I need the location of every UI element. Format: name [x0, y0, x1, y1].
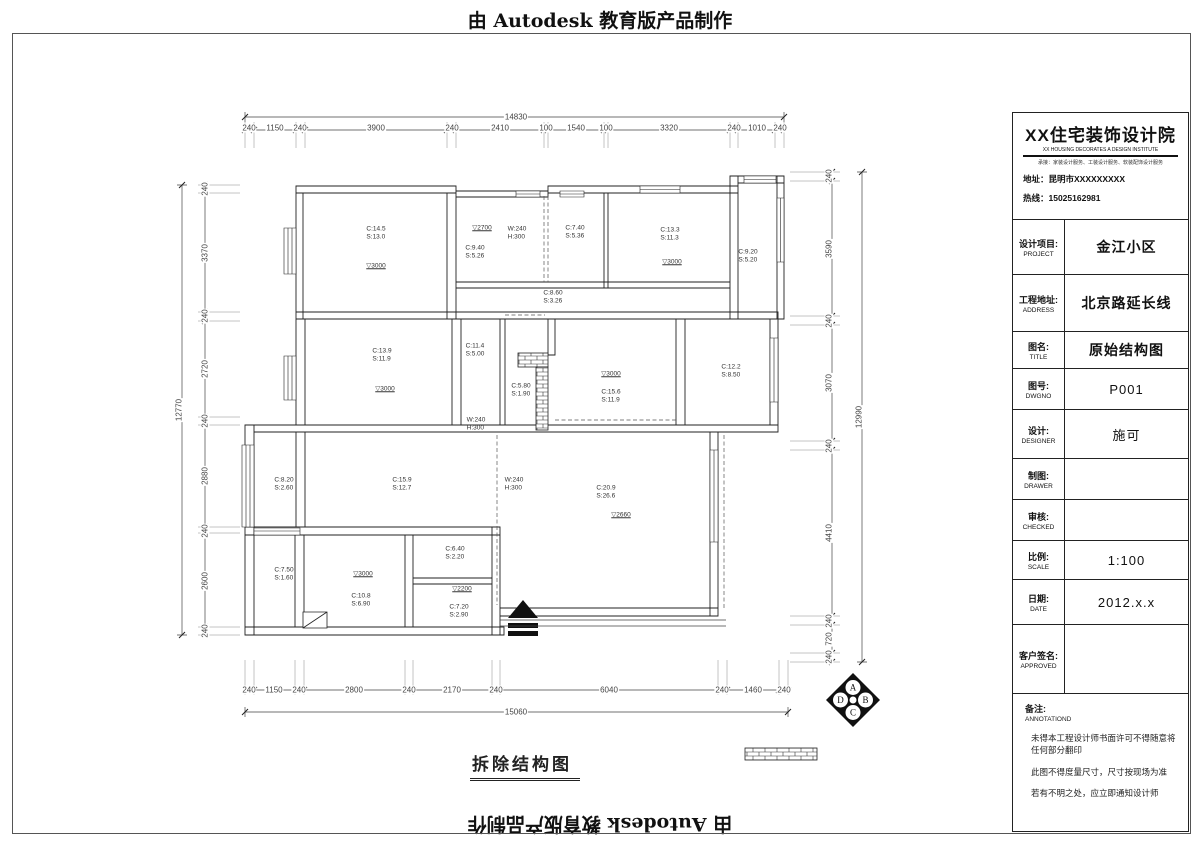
- dim-left: 240: [201, 413, 210, 428]
- corner-door-shape: [303, 612, 327, 628]
- row-approved: 客户签名:APPROVED: [1013, 624, 1188, 693]
- wall-note: W:240H:300: [467, 417, 486, 432]
- dimension-lines: [177, 112, 867, 717]
- level-label: ▽2660: [611, 511, 630, 519]
- dim-bottom: 2800: [344, 686, 364, 695]
- dim-right: 240: [825, 613, 834, 628]
- drawer-value: [1065, 459, 1188, 499]
- checked-value: [1065, 500, 1188, 540]
- dim-left: 2880: [201, 466, 210, 486]
- wall-note: W:240H:300: [508, 226, 527, 241]
- compass-letter-d: D: [837, 695, 844, 705]
- dim-right: 240: [825, 438, 834, 453]
- dim-left: 240: [201, 308, 210, 323]
- room-label: C:13.9S:11.9: [372, 348, 391, 363]
- dim-top: 1540: [566, 124, 586, 133]
- drawing-sheet: 由 Autodesk 教育版产品制作 由 Autodesk 教育版产品制作: [0, 0, 1200, 855]
- title-block: XX住宅装饰设计院 XX HOUSING DECORATES A DESIGN …: [1012, 112, 1189, 832]
- dim-top: 240: [444, 124, 459, 133]
- row-drawer: 制图:DRAWER: [1013, 458, 1188, 499]
- level-label: ▽2700: [472, 224, 491, 232]
- level-label: ▽2200: [452, 585, 471, 593]
- walls: [245, 176, 784, 635]
- annotation-note: 若有不明之处，应立即通知设计师: [1031, 787, 1180, 799]
- wall-note: W:240H:300: [505, 477, 524, 492]
- project-value: 金江小区: [1065, 220, 1188, 274]
- annotation-note: 此图不得度量尺寸，尺寸按现场为准: [1031, 766, 1180, 778]
- dim-left: 2600: [201, 571, 210, 591]
- entry-arrow-icon: [508, 600, 538, 636]
- row-designer: 设计:DESIGNER 施可: [1013, 409, 1188, 458]
- row-checked: 审核:CHECKED: [1013, 499, 1188, 540]
- room-label: C:9.40S:5.26: [465, 245, 484, 260]
- institute-name-en: XX HOUSING DECORATES A DESIGN INSTITUTE: [1023, 147, 1178, 157]
- dim-bottom: 240: [401, 686, 416, 695]
- dim-bottom: 240: [291, 686, 306, 695]
- dim-top: 100: [538, 124, 553, 133]
- row-date: 日期:DATE 2012.x.x: [1013, 579, 1188, 624]
- dwgno-value: P001: [1065, 369, 1188, 409]
- row-scale: 比例:SCALE 1:100: [1013, 540, 1188, 579]
- room-label: C:15.9S:12.7: [392, 477, 411, 492]
- brick-wall-h: [518, 353, 548, 367]
- level-label: ▽3000: [601, 370, 620, 378]
- title-value: 原始结构图: [1065, 332, 1188, 368]
- room-label: C:15.6S:11.9: [601, 389, 620, 404]
- row-project: 设计项目:PROJECT 金江小区: [1013, 219, 1188, 274]
- dim-bottom: 1150: [264, 686, 283, 695]
- room-label: C:7.20S:2.90: [449, 604, 468, 619]
- dim-left: 240: [201, 523, 210, 538]
- institute-name: XX住宅装饰设计院: [1013, 121, 1188, 146]
- institute-hotline: 热线：15025162981: [1023, 192, 1188, 204]
- scale-value: 1:100: [1065, 541, 1188, 579]
- compass-symbol: A B C D: [826, 673, 880, 727]
- room-label: C:7.50S:1.60: [274, 567, 293, 582]
- dim-left-total: 12770: [175, 398, 184, 422]
- compass-letter-c: C: [850, 708, 856, 718]
- dim-bottom-total: 15060: [504, 708, 528, 717]
- room-label: C:5.80S:1.90: [511, 383, 530, 398]
- institute-tagline: 承接：家装设计服务、工装设计服务、软装配饰设计服务: [1019, 159, 1182, 166]
- dim-bottom: 2170: [442, 686, 462, 695]
- annotation-note: 未得本工程设计师书面许可不得随意将任何部分翻印: [1031, 732, 1180, 757]
- dim-top-total: 14830: [504, 113, 528, 122]
- dim-right-total: 12990: [855, 405, 864, 429]
- dim-right: 720: [825, 631, 834, 646]
- room-label: C:14.5S:13.0: [366, 226, 385, 241]
- dim-left: 3370: [201, 243, 210, 263]
- room-label: C:10.8S:6.90: [351, 593, 370, 608]
- title-block-header: XX住宅装饰设计院 XX HOUSING DECORATES A DESIGN …: [1013, 113, 1188, 219]
- dim-left: 240: [201, 623, 210, 638]
- dim-top: 3320: [659, 124, 679, 133]
- dim-top: 3900: [366, 124, 386, 133]
- dim-top: 100: [598, 124, 613, 133]
- brick-wall-v: [536, 367, 548, 430]
- level-label: ▽3000: [662, 258, 681, 266]
- room-label: C:13.3S:11.3: [660, 227, 679, 242]
- dim-top: 2410: [490, 124, 510, 133]
- dim-bottom: 240: [241, 686, 256, 695]
- compass-letter-a: A: [850, 683, 857, 693]
- annotations-label-en: ANNOTATIOND: [1025, 716, 1180, 723]
- dim-right: 4410: [825, 523, 834, 543]
- dim-bottom: 6040: [599, 686, 619, 695]
- dim-left: 2720: [201, 359, 210, 379]
- dim-bottom: 240: [776, 686, 791, 695]
- room-label: C:8.60S:3.26: [543, 290, 562, 305]
- designer-value: 施可: [1065, 410, 1188, 458]
- date-value: 2012.x.x: [1065, 580, 1188, 624]
- plan-caption: 拆除结构图: [470, 750, 580, 781]
- dim-right: 240: [825, 649, 834, 664]
- dim-bottom: 240: [714, 686, 729, 695]
- dim-top: 1150: [265, 124, 284, 133]
- level-label: ▽3000: [353, 570, 372, 578]
- compass-letter-b: B: [862, 695, 868, 705]
- level-label: ▽3000: [366, 262, 385, 270]
- dim-left: 240: [201, 181, 210, 196]
- dim-top: 240: [726, 124, 741, 133]
- dim-right: 240: [825, 313, 834, 328]
- dim-bottom: 1460: [743, 686, 763, 695]
- dim-top: 240: [241, 124, 256, 133]
- brick-legend-bar: [745, 748, 817, 760]
- room-label: C:6.40S:2.20: [445, 546, 464, 561]
- level-label: ▽3000: [375, 385, 394, 393]
- row-dwgno: 图号:DWGNO P001: [1013, 368, 1188, 409]
- room-label: C:20.9S:26.6: [596, 485, 615, 500]
- address-value: 北京路延长线: [1065, 275, 1188, 331]
- dim-top: 1010: [747, 124, 767, 133]
- dim-right: 3070: [825, 373, 834, 393]
- dim-bottom: 240: [488, 686, 503, 695]
- dim-right: 3590: [825, 239, 834, 259]
- room-label: C:11.4S:5.00: [466, 343, 485, 358]
- room-label: C:12.2S:8.50: [721, 364, 740, 379]
- room-label: C:8.20S:2.60: [274, 477, 293, 492]
- row-address: 工程地址:ADDRESS 北京路延长线: [1013, 274, 1188, 331]
- dim-top: 240: [292, 124, 307, 133]
- room-label: C:9.20S:5.20: [738, 249, 757, 264]
- approved-value: [1065, 625, 1188, 693]
- row-title: 图名:TITLE 原始结构图: [1013, 331, 1188, 368]
- annotations-label: 备注:: [1025, 702, 1180, 715]
- room-label: C:7.40S:5.36: [565, 225, 584, 240]
- dim-right: 240: [825, 168, 834, 183]
- annotations-section: 备注: ANNOTATIOND 未得本工程设计师书面许可不得随意将任何部分翻印 …: [1013, 693, 1188, 831]
- dim-top: 240: [772, 124, 787, 133]
- institute-address: 地址：昆明市XXXXXXXXX: [1023, 173, 1188, 185]
